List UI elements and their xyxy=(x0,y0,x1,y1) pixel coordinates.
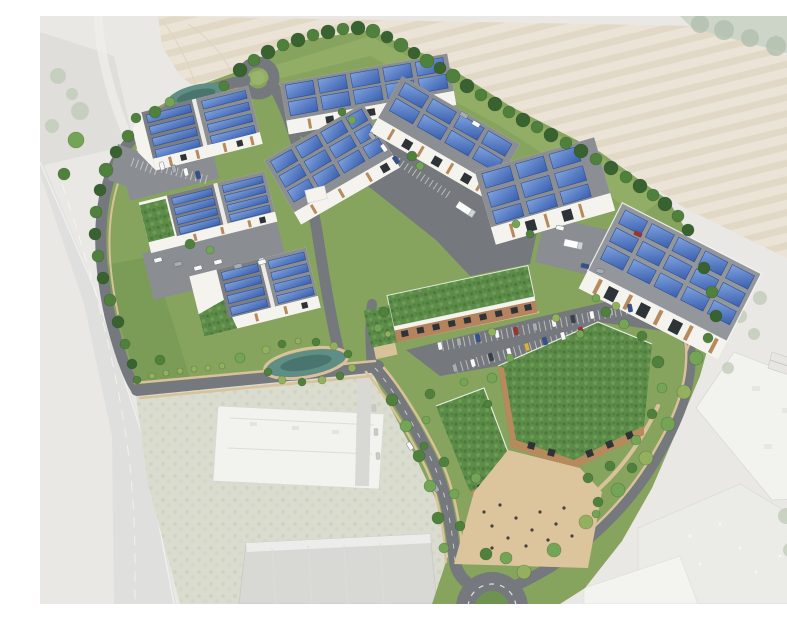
existing-building-2 xyxy=(239,534,437,604)
car xyxy=(372,404,376,411)
aerial-render-canvas xyxy=(40,16,787,604)
tree xyxy=(68,132,84,148)
tree xyxy=(58,168,70,180)
masterplan-render xyxy=(40,16,787,604)
turning-circle-island xyxy=(251,71,265,85)
car xyxy=(374,428,378,435)
car xyxy=(376,452,380,459)
